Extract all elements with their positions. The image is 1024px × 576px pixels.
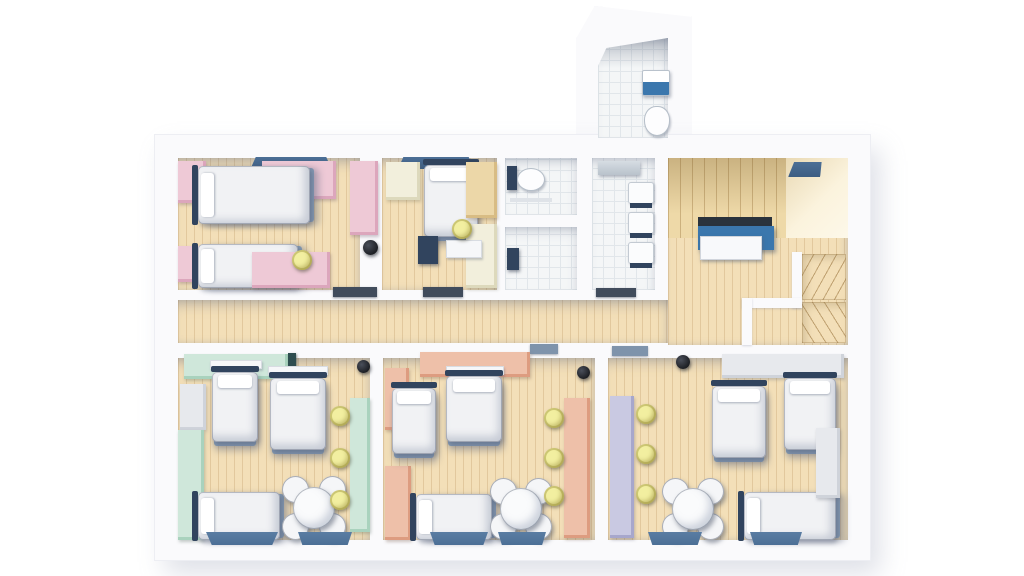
- washbasin: [642, 70, 670, 96]
- toilet: [644, 106, 670, 136]
- doormat: [530, 344, 558, 354]
- dining-table-set: [662, 478, 724, 540]
- waste-bin: [357, 360, 370, 373]
- wall-cabinet: [466, 162, 497, 218]
- desk-chair-yellow: [544, 486, 564, 506]
- cabinet: [180, 384, 206, 430]
- bed: [270, 378, 326, 450]
- dark-desk: [333, 287, 377, 297]
- bed: [712, 386, 766, 458]
- desk-chair-yellow: [544, 408, 564, 428]
- wardrobe: [385, 466, 411, 540]
- round-table: [672, 488, 714, 530]
- desk-chair-yellow: [636, 404, 656, 424]
- staircase-upper-winders: [802, 254, 846, 300]
- desk: [252, 252, 330, 288]
- window-sill: [430, 532, 488, 545]
- doormat: [612, 346, 648, 356]
- desk-chair-yellow: [544, 448, 564, 468]
- office-chair-black: [363, 240, 378, 255]
- window-sill: [648, 532, 702, 545]
- waste-bin: [577, 366, 590, 379]
- reception-counter: [700, 236, 762, 260]
- towel-rail: [510, 198, 552, 202]
- doormat: [596, 288, 636, 297]
- desk-chair-yellow: [292, 250, 312, 270]
- study-desk: [564, 398, 590, 538]
- wardrobe: [816, 428, 840, 498]
- washbasin-cabinet: [630, 263, 652, 268]
- desk-chair-yellow: [330, 448, 350, 468]
- washbasin: [628, 212, 654, 234]
- staircase-lower-flight: [802, 302, 846, 343]
- waste-bin: [676, 355, 690, 369]
- shower-tray: [598, 161, 640, 175]
- floor-plan-render: [0, 0, 1024, 576]
- low-cabinet: [418, 236, 438, 264]
- shower-fitting: [507, 248, 519, 270]
- desk-chair-yellow: [452, 219, 472, 239]
- desk-chair-yellow: [330, 490, 350, 510]
- toilet: [517, 168, 545, 191]
- washbasin-cabinet: [630, 203, 652, 208]
- desk-chair-yellow: [636, 484, 656, 504]
- window-sill: [298, 532, 352, 545]
- tall-wardrobe: [350, 161, 378, 235]
- washbasin: [628, 242, 654, 264]
- study-desk: [610, 396, 634, 538]
- cistern: [507, 166, 517, 190]
- nook-wall: [742, 298, 752, 345]
- desk-chair-yellow: [330, 406, 350, 426]
- round-table: [293, 487, 335, 529]
- bed: [198, 166, 310, 224]
- round-table: [500, 488, 542, 530]
- window-sill: [206, 532, 278, 545]
- desk-chair-yellow: [636, 444, 656, 464]
- window-sill: [750, 532, 802, 545]
- dining-table-set: [490, 478, 552, 540]
- small-desk: [446, 240, 482, 258]
- ceiling-window: [788, 162, 824, 177]
- dark-desk: [423, 287, 463, 297]
- washbasin-cabinet: [630, 233, 652, 238]
- cabinet: [386, 162, 420, 200]
- study-desk: [350, 398, 370, 532]
- bed: [446, 376, 502, 442]
- bed: [392, 388, 436, 454]
- window-sill: [498, 532, 546, 545]
- bed: [212, 372, 258, 442]
- washbasin: [628, 182, 654, 204]
- corridor-floor: [178, 300, 668, 343]
